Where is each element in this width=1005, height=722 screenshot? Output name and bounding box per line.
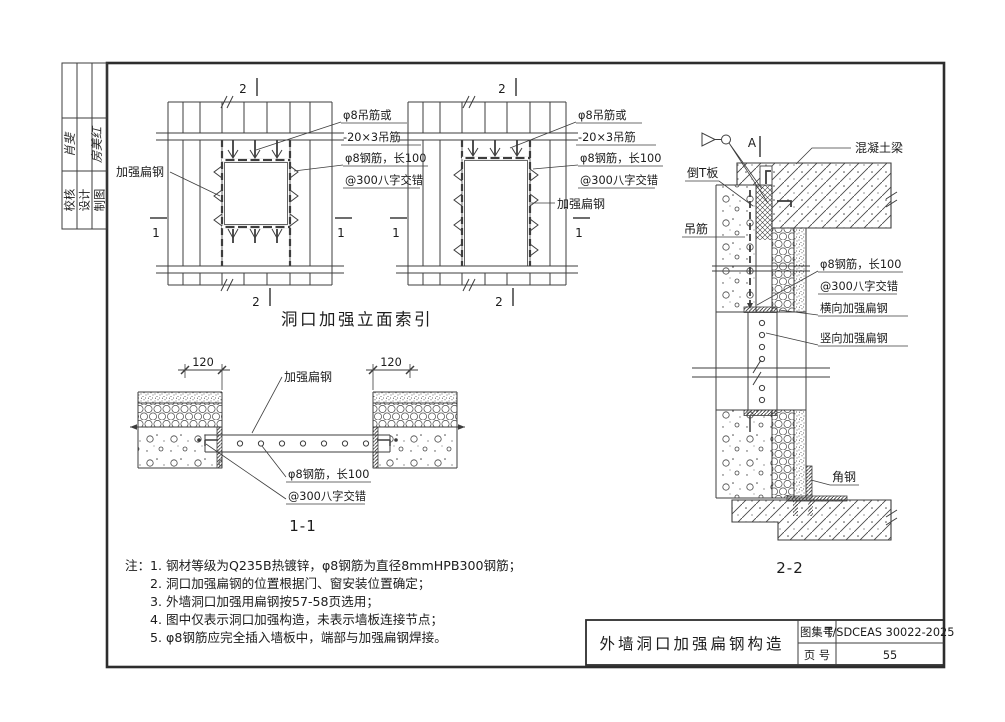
signature-checker: 肖斐 bbox=[63, 131, 77, 157]
elevations-caption: 洞口加强立面索引 bbox=[281, 310, 433, 329]
notes-prefix: 注： bbox=[125, 558, 150, 573]
label-rebar-2-2-2: @300八字交错 bbox=[820, 279, 898, 293]
label-hanger-bar: 吊筋 bbox=[684, 221, 708, 236]
label-rebar-1-2-2: φ8钢筋，长100 bbox=[820, 257, 901, 271]
section-marker-1-left-2: 1 bbox=[392, 226, 400, 240]
note-item-2: 2. 洞口加强扁钢的位置根据门、窗安装位置确定； bbox=[150, 576, 431, 592]
dim-120-left: 120 bbox=[192, 356, 214, 369]
drawing-canvas: 校核 设计 制图 肖斐 房美红 2 2 1 1 加强扁钢 bbox=[0, 0, 1005, 722]
label-rebar-1-2: φ8钢筋，长100 bbox=[580, 151, 661, 165]
note-item-5: 5. φ8钢筋应完全插入墙板中，端部与加强扁钢焊接。 bbox=[150, 630, 447, 645]
label-rebar-2-2: @300八字交错 bbox=[580, 173, 658, 187]
detail-marker-A: A bbox=[748, 136, 757, 150]
approval-label-draft: 制图 bbox=[94, 189, 107, 212]
label-concrete-beam: 混凝土梁 bbox=[855, 140, 903, 155]
atlas-no-value: T/SDCEAS 30022-2025 bbox=[825, 626, 955, 639]
note-item-1: 1. 钢材等级为Q235B热镀锌，φ8钢筋为直径8mmHPB300钢筋； bbox=[150, 558, 521, 574]
label-flat-steel-right: 加强扁钢 bbox=[557, 197, 605, 211]
label-inverted-t-panel: 倒T板 bbox=[687, 166, 718, 180]
notes: 注： 1. 钢材等级为Q235B热镀锌，φ8钢筋为直径8mmHPB300钢筋； … bbox=[125, 558, 521, 645]
label-rebar-1: φ8钢筋，长100 bbox=[345, 151, 426, 165]
elevation-door-opening: 2 2 1 1 φ8吊筋或 -20×3吊筋 φ8钢筋，长100 @300八字交错… bbox=[390, 78, 663, 309]
label-rebar-2-1-1: @300八字交错 bbox=[288, 489, 366, 503]
drawing-sheet: 校核 设计 制图 肖斐 房美红 2 2 1 1 加强扁钢 bbox=[0, 0, 1005, 722]
label-rebar-2: @300八字交错 bbox=[345, 173, 423, 187]
label-flat-steel-left: 加强扁钢 bbox=[116, 165, 164, 179]
note-item-4: 4. 图中仅表示洞口加强构造，未表示墙板连接节点； bbox=[150, 612, 443, 628]
section-marker-2-bottom-2: 2 bbox=[495, 295, 503, 309]
label-flat-steel-1-1: 加强扁钢 bbox=[284, 370, 332, 384]
section-marker-1-left: 1 bbox=[152, 226, 160, 240]
signature-designer: 房美红 bbox=[90, 125, 104, 163]
caption-1-1: 1-1 bbox=[289, 517, 317, 535]
page-no-value: 55 bbox=[883, 649, 897, 662]
label-hanger-2-2: -20×3吊筋 bbox=[578, 130, 636, 144]
section-1-1: 120 120 加强扁钢 φ8钢筋，长100 bbox=[130, 356, 465, 535]
label-vertical-flat-steel: 竖向加强扁钢 bbox=[820, 331, 888, 345]
approval-label-design: 设计 bbox=[79, 189, 92, 212]
section-marker-2-bottom: 2 bbox=[252, 295, 260, 309]
drawing-title: 外墙洞口加强扁钢构造 bbox=[599, 635, 784, 653]
section-marker-2-top: 2 bbox=[239, 82, 247, 96]
label-rebar-1-1-1: φ8钢筋，长100 bbox=[288, 467, 369, 481]
approval-label-check: 校核 bbox=[63, 189, 77, 212]
title-block: 外墙洞口加强扁钢构造 图集号 T/SDCEAS 30022-2025 页 号 5… bbox=[586, 620, 954, 665]
section-2-2: A 混凝土梁 倒T板 吊筋 φ8钢筋，长100 @300八字交错 横向加强扁钢 … bbox=[682, 133, 908, 577]
approval-table: 校核 设计 制图 肖斐 房美红 bbox=[62, 63, 107, 229]
label-hanger-1-2: φ8吊筋或 bbox=[578, 108, 627, 122]
caption-2-2: 2-2 bbox=[776, 559, 804, 577]
label-angle-steel: 角钢 bbox=[832, 470, 856, 484]
label-horizontal-flat-steel: 横向加强扁钢 bbox=[820, 301, 888, 315]
page-no-label: 页 号 bbox=[804, 649, 830, 662]
note-item-3: 3. 外墙洞口加强用扁钢按57-58页选用； bbox=[150, 594, 379, 610]
section-marker-2-top-2: 2 bbox=[498, 82, 506, 96]
section-marker-1-right: 1 bbox=[337, 226, 345, 240]
label-hanger-2: -20×3吊筋 bbox=[343, 130, 401, 144]
section-marker-1-right-2: 1 bbox=[575, 226, 583, 240]
elevation-window-opening: 2 2 1 1 加强扁钢 φ8吊筋或 -20×3吊筋 φ8钢筋，长100 @30… bbox=[116, 78, 428, 309]
dim-120-right: 120 bbox=[380, 356, 402, 369]
label-hanger-1: φ8吊筋或 bbox=[343, 108, 392, 122]
